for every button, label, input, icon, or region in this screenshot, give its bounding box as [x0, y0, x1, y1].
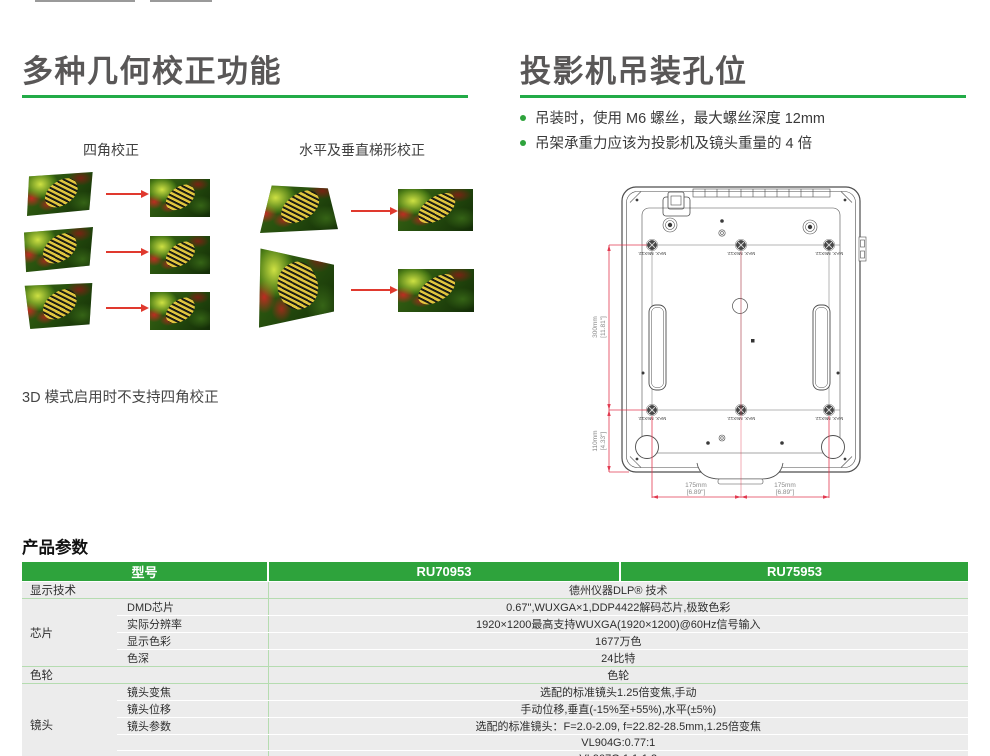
datasheet-page: 多种几何校正功能 四角校正 水平及垂直梯形校正 3D 模式启用时不支持四角校正 …: [0, 0, 990, 756]
mount-bullet-1: 吊装时，使用 M6 螺丝，最大螺丝深度 12mm: [520, 107, 825, 128]
row-label-empty: [117, 735, 268, 751]
group-label-lens: 镜头: [22, 684, 117, 756]
row-value-vl907g: VL907G:1.1-1.3: [268, 751, 968, 756]
top-cutoff-bar-1: [35, 0, 135, 2]
table-row: 实际分辨率 1920×1200最高支持WUXGA(1920×1200)@60Hz…: [22, 616, 968, 633]
bottom-foot: [697, 463, 783, 484]
dim-175mm-right: 175mm: [774, 482, 796, 489]
row-value-display-tech: 德州仪器DLP® 技术: [268, 582, 968, 599]
row-label-empty: [117, 751, 268, 756]
col-header-ru75953: RU75953: [620, 562, 968, 582]
mount-bullet-1-text: 吊装时，使用 M6 螺丝，最大螺丝深度 12mm: [535, 111, 825, 127]
row-value-resolution: 1920×1200最高支持WUXGA(1920×1200)@60Hz信号输入: [268, 616, 968, 633]
table-row: 镜头 镜头变焦 选配的标准镜头1.25倍变焦,手动: [22, 684, 968, 701]
distorted-image-3: [24, 283, 93, 329]
row-value-lens-zoom: 选配的标准镜头1.25倍变焦,手动: [268, 684, 968, 701]
col-header-ru70953: RU70953: [268, 562, 620, 582]
side-connector: [859, 237, 866, 261]
row-label-color-wheel: 色轮: [22, 667, 268, 684]
row-value-depth: 24比特: [268, 650, 968, 667]
mount-section-title: 投影机吊装孔位: [520, 56, 748, 87]
distorted-image-2: [24, 227, 93, 273]
dim-300mm: 300mm: [592, 316, 599, 338]
mount-bullet-2: 吊架承重力应该为投影机及镜头重量的 4 倍: [520, 132, 812, 153]
row-label-resolution: 实际分辨率: [117, 616, 268, 633]
table-header-row: 型号 RU70953 RU75953: [22, 562, 968, 582]
geometry-title-rule: [22, 95, 468, 98]
table-row: 色深 24比特: [22, 650, 968, 667]
row-label-colors: 显示色彩: [117, 633, 268, 650]
mount-title-rule: [520, 95, 966, 98]
row-value-lens-spec: 选配的标准镜头：F=2.0-2.09, f=22.82-28.5mm,1.25倍…: [268, 718, 968, 735]
row-label-lens-zoom: 镜头变焦: [117, 684, 268, 701]
row-label-display-tech: 显示技术: [22, 582, 268, 599]
dim-175mm-right-inch: [6.89"]: [776, 489, 795, 496]
table-row: 显示色彩 1677万色: [22, 633, 968, 650]
keystone-corrected-2: [398, 269, 474, 312]
dim-175mm-left: 175mm: [685, 482, 707, 489]
table-row: 色轮 色轮: [22, 667, 968, 684]
row-label-depth: 色深: [117, 650, 268, 667]
keystone-corrected-1: [398, 189, 473, 231]
table-row: VL904G:0.77:1: [22, 735, 968, 751]
row-value-color-wheel: 色轮: [268, 667, 968, 684]
col-header-model: 型号: [22, 562, 268, 582]
arrow-icon: [106, 307, 142, 309]
table-row: 芯片 DMD芯片 0.67",WUXGA×1,DDP4422解码芯片,极致色彩: [22, 599, 968, 616]
four-corner-label: 四角校正: [63, 140, 159, 160]
bullet-dot-icon: [520, 140, 526, 146]
keystone-label: 水平及垂直梯形校正: [299, 140, 425, 160]
row-label-dmd: DMD芯片: [117, 599, 268, 616]
row-value-dmd: 0.67",WUXGA×1,DDP4422解码芯片,极致色彩: [268, 599, 968, 616]
top-cutoff-bar-2: [150, 0, 212, 2]
arrow-icon: [351, 289, 391, 291]
geometry-section-title: 多种几何校正功能: [22, 56, 282, 87]
group-label-chip: 芯片: [22, 599, 117, 667]
table-row: VL907G:1.1-1.3: [22, 751, 968, 756]
mount-bullet-2-text: 吊架承重力应该为投影机及镜头重量的 4 倍: [535, 136, 812, 152]
corrected-image-2: [150, 236, 210, 274]
corrected-image-1: [150, 179, 210, 217]
row-value-vl904g: VL904G:0.77:1: [268, 735, 968, 751]
screw-label: MAX. M6X12.: [638, 251, 666, 256]
table-row: 显示技术 德州仪器DLP® 技术: [22, 582, 968, 599]
dim-110mm: 110mm: [592, 430, 599, 451]
row-value-colors: 1677万色: [268, 633, 968, 650]
note-3d: 3D 模式启用时不支持四角校正: [22, 386, 219, 407]
row-label-lens-spec: 镜头参数: [117, 718, 268, 735]
spec-section-title: 产品参数: [22, 534, 88, 558]
keystone-image-2: [259, 246, 334, 331]
dim-110mm-inch: [4.33"]: [600, 432, 607, 451]
table-row: 镜头位移 手动位移,垂直(-15%至+55%),水平(±5%): [22, 701, 968, 718]
row-value-lens-shift: 手动位移,垂直(-15%至+55%),水平(±5%): [268, 701, 968, 718]
table-row: 镜头参数 选配的标准镜头：F=2.0-2.09, f=22.82-28.5mm,…: [22, 718, 968, 735]
corrected-image-3: [150, 292, 210, 330]
bullet-dot-icon: [520, 115, 526, 121]
arrow-icon: [106, 193, 142, 195]
projector-bottom-diagram: MAX. M6X12. MAX. M6X12. MAX. M6X12. MAX.…: [585, 182, 885, 522]
distorted-image-1: [27, 172, 94, 216]
arrow-icon: [351, 210, 391, 212]
dim-175mm-left-inch: [6.89"]: [687, 489, 706, 496]
row-label-lens-shift: 镜头位移: [117, 701, 268, 718]
spec-table: 型号 RU70953 RU75953 显示技术 德州仪器DLP® 技术 芯片 D…: [22, 562, 968, 756]
dim-300mm-inch: [11.81"]: [600, 316, 607, 338]
arrow-icon: [106, 251, 142, 253]
screw-label: MAX. M6X12.: [815, 251, 843, 256]
keystone-image-1: [260, 184, 338, 233]
